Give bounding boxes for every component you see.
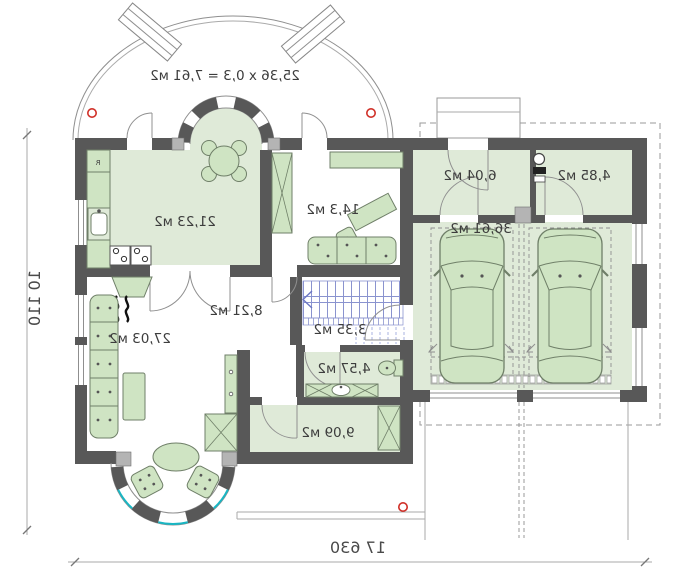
- kitchen-sink: [88, 208, 110, 240]
- armchair-2: [185, 464, 220, 499]
- survey-marker-icon: [399, 503, 407, 511]
- stair-hall-area-label: 3,35 м2: [313, 322, 366, 338]
- wc-area-label: 4,85 м2: [557, 168, 610, 184]
- bathroom-area-label: 4,57 м2: [317, 361, 370, 377]
- utility-area-label: 9,09 м2: [301, 425, 354, 441]
- porch: [437, 98, 520, 138]
- bath-counter: [306, 384, 378, 397]
- coffee-table: [123, 373, 145, 420]
- car-1: [434, 229, 510, 383]
- armchair-1: [129, 464, 164, 499]
- car-2: [532, 229, 608, 383]
- living-sofa: [90, 295, 118, 438]
- vertical-dimension-label: 10 110: [25, 270, 44, 326]
- stove: [110, 246, 151, 265]
- office-area-label: 14,3 м2: [306, 202, 359, 218]
- fridge-label: R: [95, 159, 100, 167]
- office-shelf: [330, 152, 403, 168]
- terrace-door-left: [127, 113, 152, 138]
- floor-plan-page: 25,36 x 0,3 = 7,61 м2 21,23 м2 14,3 м2 2…: [0, 0, 700, 575]
- terrace-label: 25,36 x 0,3 = 7,61 м2: [150, 68, 300, 84]
- living-area-label: 27,03 м2: [109, 331, 171, 347]
- living-wardrobe: [205, 414, 237, 451]
- garage-window-2: [632, 328, 647, 386]
- horizontal-dimension-label: 17 630: [330, 538, 386, 557]
- survey-marker-icon: [367, 109, 375, 117]
- roof-window-right: [281, 5, 344, 63]
- vestibule-area-label: 6,04 м2: [443, 168, 496, 184]
- utility-wardrobe: [378, 406, 400, 450]
- garage-pillar: [515, 207, 531, 223]
- living-window-2: [75, 345, 87, 385]
- garage-area-label: 36,61 м2: [450, 221, 512, 237]
- garage-window-1: [632, 224, 647, 264]
- terrace-steps: [237, 512, 425, 519]
- hall-area-label: 8,21 м2: [209, 303, 262, 319]
- kitchen-window: [75, 200, 87, 245]
- kitchen-area-label: 21,23 м2: [154, 214, 216, 230]
- turret-table: [153, 443, 199, 471]
- tv-board: [225, 355, 237, 413]
- survey-marker-icon: [88, 109, 96, 117]
- garage-door-right: [533, 393, 620, 398]
- floor-plan-drawing: 25,36 x 0,3 = 7,61 м2 21,23 м2 14,3 м2 2…: [0, 0, 700, 575]
- garage-door-left: [430, 393, 517, 398]
- terrace-door-right: [302, 113, 327, 138]
- living-window-1: [75, 295, 87, 337]
- boiler: [533, 154, 546, 183]
- toilet: [379, 360, 404, 376]
- office-sofa: [308, 237, 396, 264]
- office-wardrobe: [272, 153, 292, 233]
